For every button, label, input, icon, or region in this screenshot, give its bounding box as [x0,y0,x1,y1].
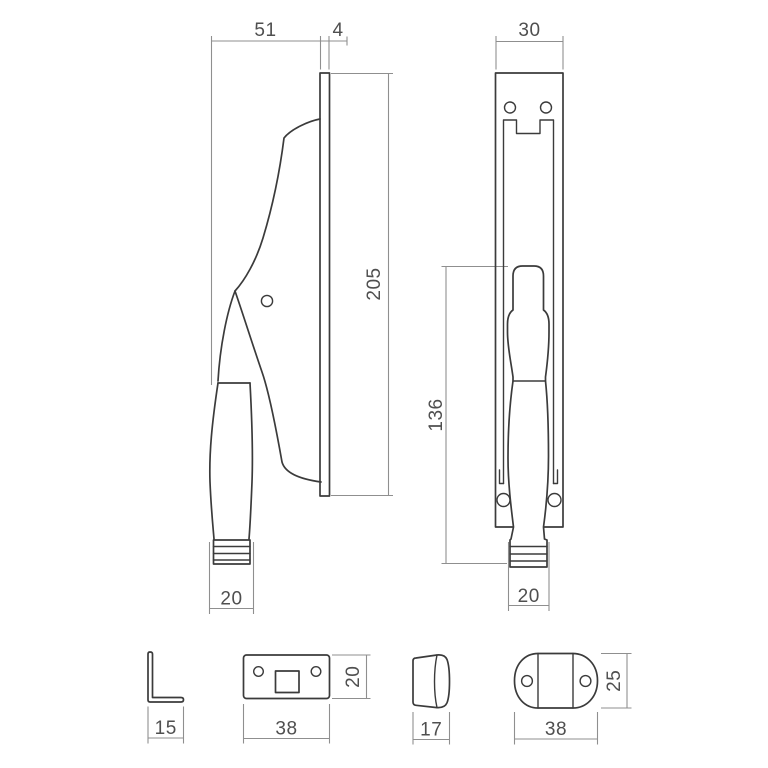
dim-label-oval-width: 38 [545,719,567,740]
dim-label-front-grip-diameter: 20 [518,586,540,607]
dim-label-cap-depth: 17 [420,720,442,741]
dim-label-bracket-leg: 15 [155,718,177,739]
side-view: 51 4 205 20 [210,20,394,614]
screw-hole [580,676,591,687]
screw-hole [541,102,552,113]
dim-label-side-height: 205 [364,267,385,300]
screw-hole [548,494,561,507]
escutcheon-profile [218,119,321,482]
screw-hole [522,676,533,687]
dim-label-side-plate-thickness: 4 [332,20,343,41]
backplate-edge [320,73,330,496]
end-cap-side-view: 17 [413,655,450,745]
angle-bracket-dimensions: 15 [148,707,184,744]
screw-hole [254,667,264,677]
square-bolt-hole [276,671,300,693]
dim-label-side-grip-diameter: 20 [220,589,242,610]
handle-front [508,266,550,567]
dim-label-strike-width: 38 [275,719,297,740]
screw-hole [261,295,272,306]
dim-label-strike-height: 20 [343,666,364,688]
oval-keep-plate: 25 38 [515,654,632,745]
angle-bracket: 15 [148,652,184,744]
dim-label-side-projection: 51 [254,20,276,41]
dim-label-oval-height: 25 [604,670,625,692]
screw-hole [311,667,321,677]
side-view-dimensions: 51 4 205 20 [210,20,394,614]
dim-label-front-plate-width: 30 [518,20,540,41]
front-view: 30 136 20 [426,20,563,611]
dim-label-front-handle-length: 136 [426,398,447,431]
strike-plate: 20 38 [244,655,371,744]
drawing-canvas: 51 4 205 20 [0,0,768,768]
technical-drawing: 51 4 205 20 [0,0,768,768]
handle-grip-side [210,383,253,564]
screw-hole [505,102,516,113]
screw-hole [497,494,510,507]
end-cap-dimensions: 17 [413,712,450,745]
